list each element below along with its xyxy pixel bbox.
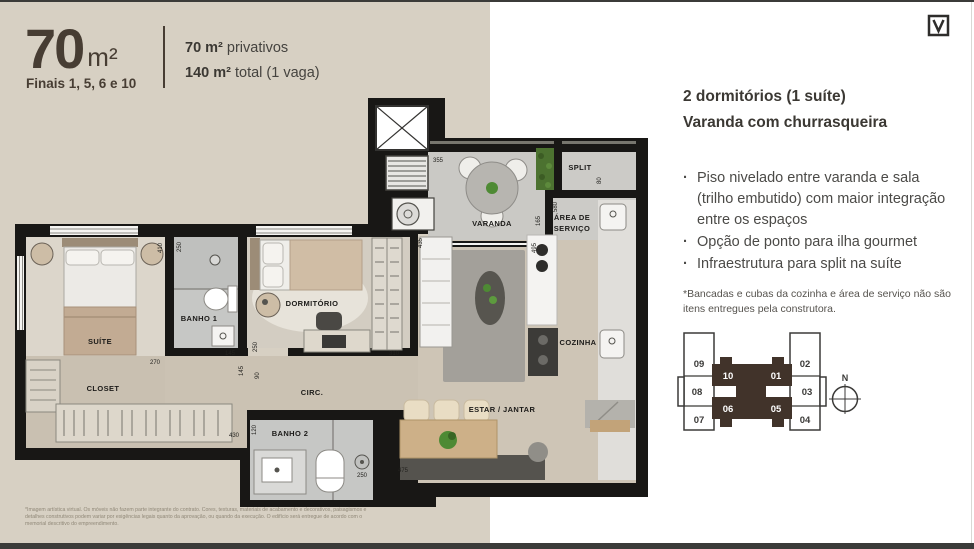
dim-label: 250 — [357, 473, 368, 479]
keyplan-unit-01: 01 — [771, 371, 782, 382]
dim-label: 430 — [229, 433, 240, 439]
dim-label: 120 — [252, 424, 258, 435]
keyplan-unit-05: 05 — [771, 404, 782, 415]
dim-label: 270 — [150, 360, 161, 366]
floorplan-drawing: SUÍTE BANHO 1 CLOSET DORMITÓRIO CIRC. BA… — [0, 0, 974, 549]
dim-label: 495 — [532, 242, 538, 253]
room-label-estar: ESTAR / JANTAR — [469, 405, 536, 414]
keyplan: 09 08 07 02 03 04 10 01 06 05 — [678, 333, 826, 430]
keyplan-unit-06: 06 — [723, 404, 734, 415]
room-label-area-servico-2: SERVIÇO — [554, 224, 590, 233]
dim-label: 410 — [158, 242, 164, 253]
room-label-closet: CLOSET — [87, 384, 120, 393]
dim-label: 580 — [553, 201, 559, 212]
slide-page: 70 m² Finais 1, 5, 6 e 10 70 m² privativ… — [0, 0, 974, 549]
compass-icon: N — [829, 373, 861, 414]
dim-label: 250 — [253, 341, 259, 352]
keyplan-unit-04: 04 — [800, 415, 811, 426]
dim-label: 80 — [597, 177, 603, 184]
dim-label: 435 — [418, 237, 424, 248]
dim-label: 145 — [225, 351, 236, 357]
dim-label: 165 — [536, 215, 542, 226]
dim-label: 310 — [389, 351, 400, 357]
keyplan-unit-03: 03 — [802, 387, 813, 398]
dim-label: 250 — [177, 241, 183, 252]
dim-label: 145 — [239, 365, 245, 376]
room-label-split: SPLIT — [568, 163, 591, 172]
compass-north-label: N — [842, 373, 849, 383]
room-label-cozinha: COZINHA — [560, 338, 597, 347]
dim-label: 90 — [255, 372, 261, 379]
room-label-banho2: BANHO 2 — [272, 429, 309, 438]
keyplan-unit-08: 08 — [692, 387, 703, 398]
dim-label: 355 — [433, 158, 444, 164]
room-label-suite: SUÍTE — [88, 337, 112, 346]
room-label-varanda: VARANDA — [472, 219, 512, 228]
room-label-banho1: BANHO 1 — [181, 314, 218, 323]
room-label-area-servico: ÁREA DE — [554, 213, 590, 222]
room-label-dormitorio: DORMITÓRIO — [286, 299, 339, 308]
keyplan-unit-10: 10 — [723, 371, 734, 382]
check-logo-icon — [929, 16, 948, 35]
dim-label: 475 — [398, 468, 409, 474]
keyplan-unit-09: 09 — [694, 359, 705, 370]
room-label-circ: CIRC. — [301, 388, 323, 397]
keyplan-unit-07: 07 — [694, 415, 705, 426]
bottom-bar — [0, 543, 974, 549]
keyplan-unit-02: 02 — [800, 359, 811, 370]
right-edge-line — [971, 2, 972, 543]
